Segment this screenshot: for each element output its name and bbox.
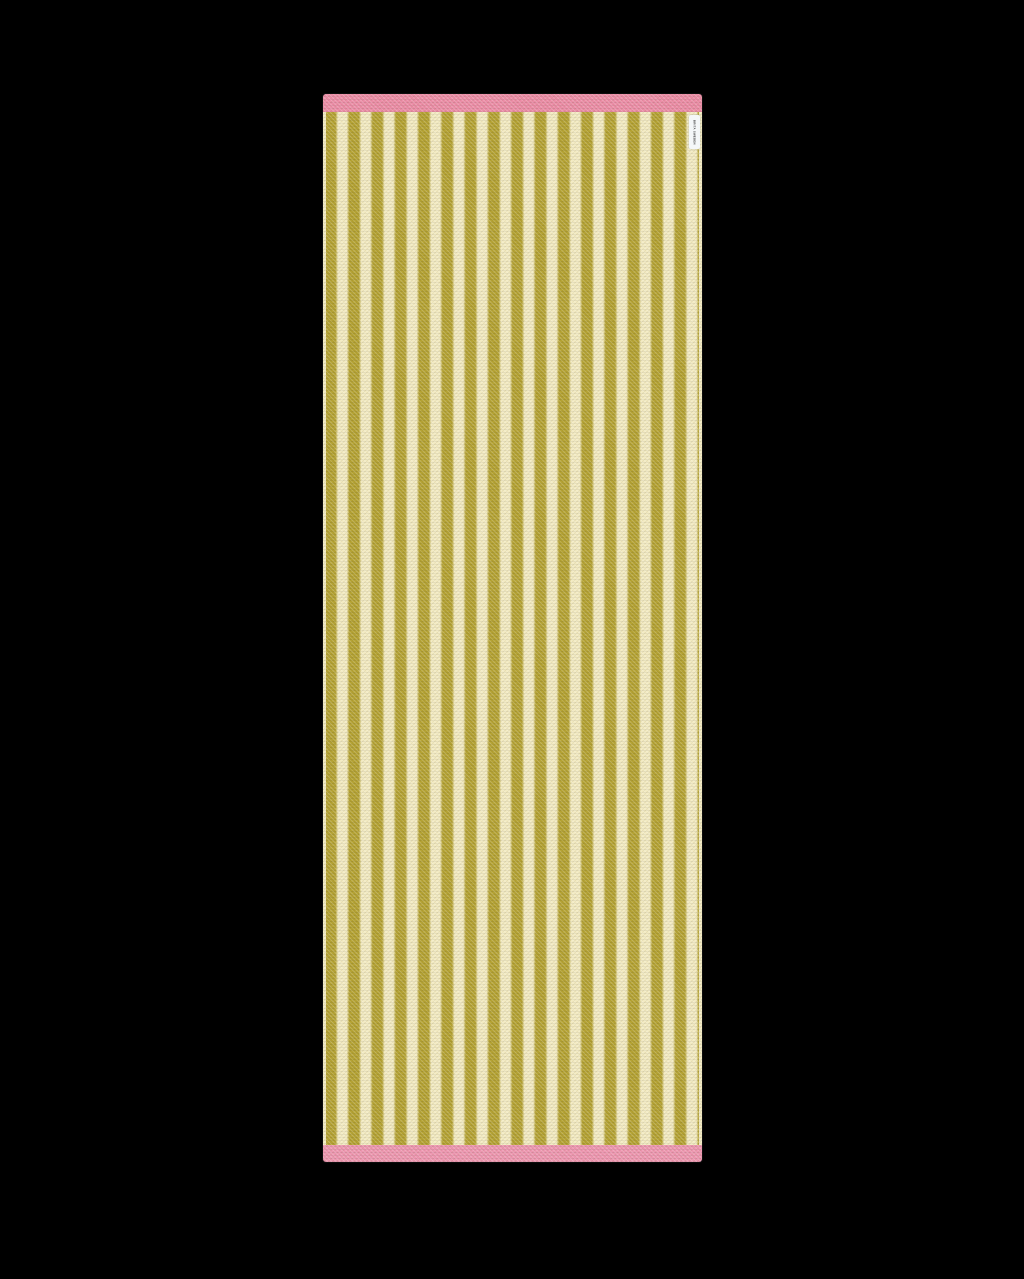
brand-tag-text: BRITA SWEDEN [693,120,696,145]
rug-striped-field [323,112,702,1145]
brand-tag: BRITA SWEDEN [689,115,700,149]
rug-product-image: BRITA SWEDEN [323,94,702,1162]
rug-bottom-pink-band [323,1145,702,1162]
rug-top-pink-band [323,94,702,112]
